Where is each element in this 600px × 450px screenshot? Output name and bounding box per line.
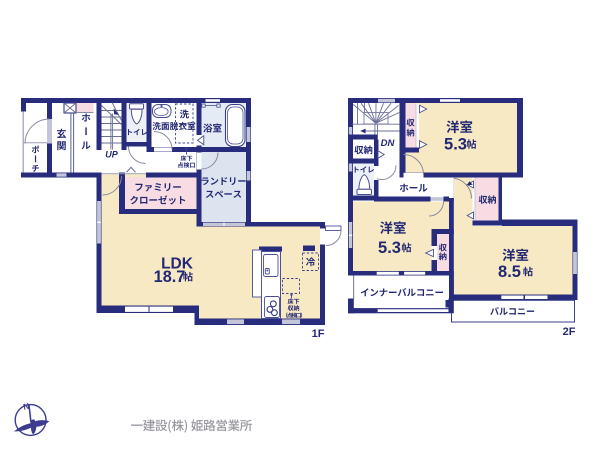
svg-text:5.3: 5.3 [378,239,401,257]
svg-text:UP: UP [105,150,118,160]
svg-text:5.3: 5.3 [444,135,467,153]
svg-text:1F: 1F [312,328,325,340]
svg-text:18.7: 18.7 [154,268,186,286]
svg-text:8.5: 8.5 [498,263,521,281]
svg-text:2F: 2F [563,326,576,338]
svg-text:DN: DN [381,138,396,149]
